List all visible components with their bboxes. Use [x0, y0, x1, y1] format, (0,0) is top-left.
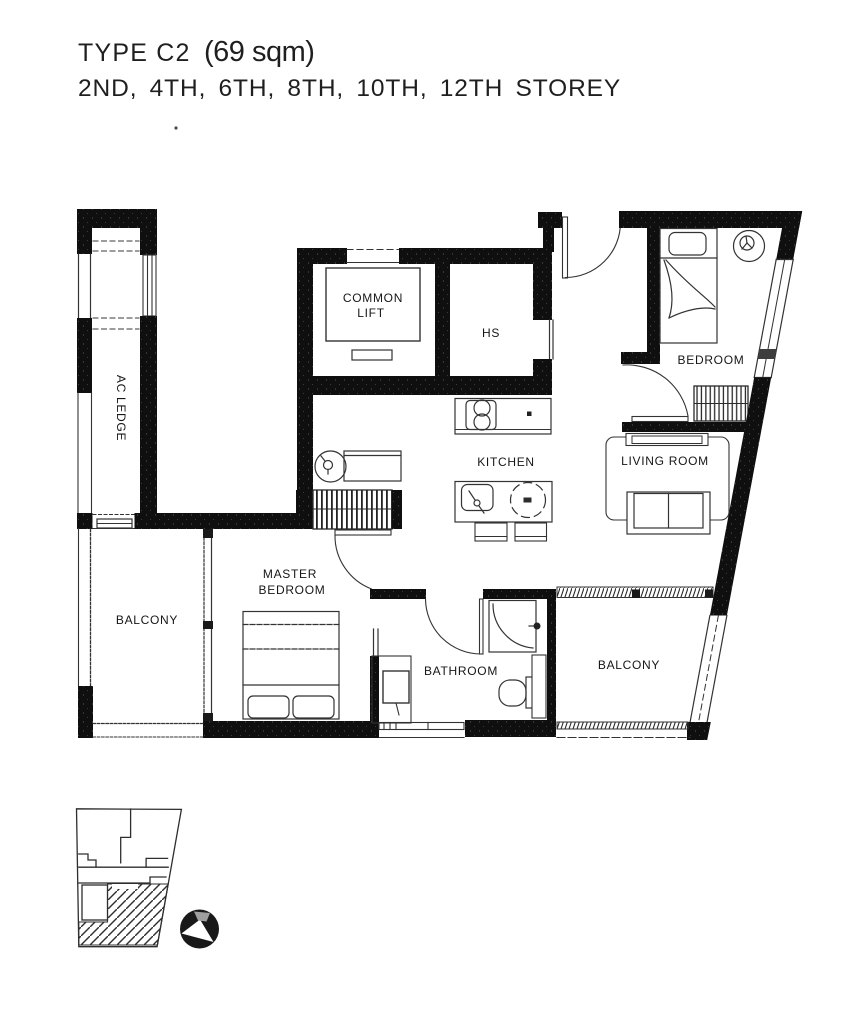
svg-text:BATHROOM: BATHROOM	[424, 664, 498, 678]
svg-text:BALCONY: BALCONY	[116, 613, 178, 627]
svg-text:(69 sqm): (69 sqm)	[204, 36, 314, 68]
svg-text:HS: HS	[482, 326, 500, 340]
svg-text:MASTER: MASTER	[263, 567, 317, 581]
svg-text:BALCONY: BALCONY	[598, 658, 660, 672]
svg-text:BEDROOM: BEDROOM	[259, 583, 326, 597]
svg-text:LIFT: LIFT	[357, 306, 384, 320]
svg-text:LIVING ROOM: LIVING ROOM	[621, 454, 709, 468]
svg-text:KITCHEN: KITCHEN	[477, 455, 535, 469]
svg-text:COMMON: COMMON	[343, 291, 403, 305]
svg-text:TYPE C2: TYPE C2	[78, 39, 191, 67]
svg-text:2ND, 4TH, 6TH, 8TH, 10TH, 12TH: 2ND, 4TH, 6TH, 8TH, 10TH, 12TH STOREY	[78, 75, 621, 102]
svg-text:AC LEDGE: AC LEDGE	[114, 375, 128, 441]
svg-text:BEDROOM: BEDROOM	[678, 353, 745, 367]
